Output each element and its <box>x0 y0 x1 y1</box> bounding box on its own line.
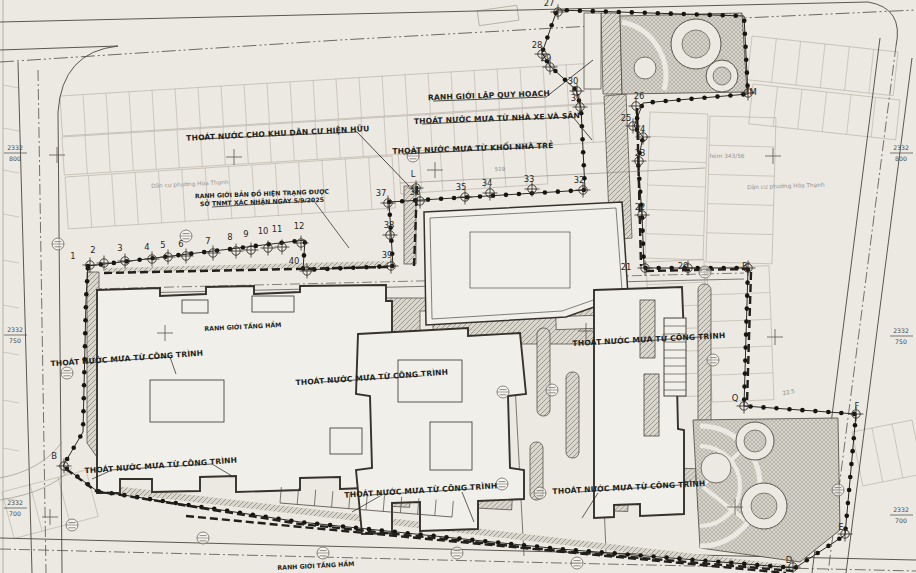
boundary-dot <box>787 407 792 412</box>
boundary-point-label: 28 <box>532 40 543 50</box>
boundary-dot <box>581 163 586 168</box>
boundary-dot <box>483 539 488 544</box>
boundary-point-label: B' <box>742 261 750 271</box>
boundary-dot <box>837 536 842 541</box>
boundary-dot <box>83 331 88 336</box>
boundary-dot <box>849 462 854 467</box>
boundary-dot <box>580 137 585 142</box>
boundary-dot <box>755 563 760 568</box>
boundary-dot <box>676 98 681 103</box>
boundary-point-label: 37 <box>376 188 387 198</box>
boundary-dot <box>815 551 820 556</box>
boundary-point-label: 34 <box>482 178 493 188</box>
boundary-dot <box>768 564 773 569</box>
boundary-dot <box>302 253 307 258</box>
boundary-dot <box>173 501 178 506</box>
boundary-point-label: B <box>51 451 57 461</box>
boundary-dot <box>478 194 483 199</box>
boundary-dot <box>82 370 87 375</box>
boundary-dot <box>744 57 749 62</box>
boundary-dot <box>848 475 853 480</box>
boundary-dot <box>581 150 586 155</box>
boundary-dot <box>702 95 707 100</box>
boundary-dot <box>569 189 574 194</box>
site-plan-svg: THOÁT NƯỚC CHO KHU DÂN CƯ HIỆN HỮU RANH … <box>0 0 916 573</box>
boundary-dot <box>84 292 89 297</box>
grid-northing: 2332 <box>893 327 909 334</box>
boundary-dot <box>847 488 852 493</box>
boundary-dot <box>629 10 634 15</box>
boundary-point-label: 39 <box>382 250 393 260</box>
grid-easting: 700 <box>9 510 21 517</box>
grid-northing: 2332 <box>7 144 23 151</box>
grid-northing: 2332 <box>7 326 23 333</box>
boundary-point-label: 11 <box>272 224 283 234</box>
boundary-dot <box>83 318 88 323</box>
stair-outline <box>664 318 686 396</box>
park-circle <box>701 453 731 483</box>
grid-easting: 700 <box>895 517 907 524</box>
boundary-dot <box>743 371 748 376</box>
boundary-dot <box>728 93 733 98</box>
boundary-dot <box>850 449 855 454</box>
grid-easting: 750 <box>9 337 21 344</box>
boundary-point-label: M <box>749 87 756 97</box>
boundary-point-label: 8 <box>227 232 232 242</box>
boundary-dot <box>715 94 720 99</box>
boundary-dot <box>743 44 748 49</box>
boundary-dot <box>668 11 673 16</box>
hatch-park-edge <box>601 13 622 94</box>
boundary-dot <box>742 384 747 389</box>
boundary-point-label: 22 <box>635 202 646 212</box>
boundary-dot <box>745 70 750 75</box>
building-core-hatched <box>644 374 659 436</box>
boundary-dot <box>707 13 712 18</box>
boundary-point-label: E <box>838 522 843 532</box>
boundary-dot <box>663 99 668 104</box>
boundary-dot <box>826 544 831 549</box>
boundary-dot <box>839 411 844 416</box>
boundary-dot <box>846 501 851 506</box>
building-core-hatched <box>640 300 655 358</box>
boundary-point-label: 32 <box>574 175 585 185</box>
boundary-point-label: 24 <box>635 124 646 134</box>
boundary-point-label: 3 <box>117 243 122 253</box>
boundary-dot <box>720 13 725 18</box>
boundary-dot <box>826 410 831 415</box>
boundary-dot <box>83 344 88 349</box>
boundary-point-label: 40 <box>289 256 300 266</box>
boundary-dot <box>743 358 748 363</box>
boundary-dot <box>761 405 766 410</box>
boundary-dot <box>112 261 117 266</box>
boundary-point-label: 21 <box>621 262 632 272</box>
boundary-point-label: 20 <box>678 261 689 271</box>
boundary-dot <box>853 423 858 428</box>
boundary-dot <box>65 457 70 462</box>
stair-grid <box>664 318 686 396</box>
label-dim-519: 519 <box>494 166 505 172</box>
boundary-dot <box>742 18 747 23</box>
boundary-point-label: 23 <box>635 148 646 158</box>
boundary-dot <box>202 250 207 255</box>
boundary-point-label: F <box>855 401 860 411</box>
boundary-point-label: 25 <box>621 113 632 123</box>
grid-easting: 750 <box>895 338 907 345</box>
boundary-dot <box>642 11 647 16</box>
boundary-point-label: 33 <box>524 174 535 184</box>
boundary-dot <box>635 116 640 121</box>
boundary-dot <box>150 256 155 261</box>
boundary-dot <box>543 190 548 195</box>
boundary-point-label: 9 <box>243 229 248 239</box>
boundary-dot <box>743 31 748 36</box>
boundary-dot <box>744 319 749 324</box>
boundary-dot <box>81 409 86 414</box>
boundary-dot <box>78 434 83 439</box>
boundary-dot <box>517 192 522 197</box>
boundary-dot <box>852 436 857 441</box>
boundary-point-label: 7 <box>205 236 210 246</box>
label-alley: hẻm 343/56 <box>709 153 744 159</box>
boundary-dot <box>400 199 405 204</box>
boundary-dot <box>328 523 333 528</box>
boundary-dot <box>364 265 369 270</box>
boundary-dot <box>733 13 738 18</box>
boundary-dot <box>638 553 643 558</box>
boundary-dot <box>137 258 142 263</box>
boundary-dot <box>81 396 86 401</box>
boundary-dot <box>545 35 550 40</box>
boundary-point-label: Q <box>732 393 739 403</box>
boundary-dot <box>844 514 849 519</box>
service-structure <box>584 13 601 89</box>
grid-easting: 800 <box>9 155 21 162</box>
site-plan-drawing: THOÁT NƯỚC CHO KHU DÂN CƯ HIỆN HỮU RANH … <box>0 0 916 573</box>
grid-easting: 800 <box>895 155 907 162</box>
boundary-dot <box>745 306 750 311</box>
median-hatch <box>537 328 550 416</box>
boundary-dot <box>743 345 748 350</box>
boundary-dot <box>744 332 749 337</box>
boundary-dot <box>748 404 753 409</box>
park-circle-inner <box>682 30 710 58</box>
park-circle <box>634 57 656 79</box>
boundary-dot <box>85 279 90 284</box>
boundary-point-label: 27 <box>544 0 555 8</box>
grid-northing: 2332 <box>893 506 909 513</box>
boundary-dot <box>549 23 554 28</box>
boundary-dot <box>563 78 568 83</box>
boundary-point-label: 4 <box>144 242 149 252</box>
boundary-dot <box>617 10 622 15</box>
boundary-dot <box>804 558 809 563</box>
boundary-dot <box>176 253 181 258</box>
boundary-point-label: 5 <box>160 240 165 250</box>
boundary-dot <box>556 189 561 194</box>
boundary-dot <box>813 409 818 414</box>
boundary-dot <box>681 12 686 17</box>
park-circle-inner <box>744 430 766 452</box>
boundary-point-label: L <box>411 169 416 179</box>
boundary-dot <box>84 305 89 310</box>
boundary-point-label: 12 <box>294 221 305 231</box>
grid-northing: 2332 <box>893 144 909 151</box>
boundary-dot <box>604 9 609 14</box>
boundary-point-label: 1 <box>70 251 75 261</box>
boundary-point-label: D <box>786 555 792 565</box>
boundary-dot <box>452 196 457 201</box>
boundary-dot <box>241 245 246 250</box>
boundary-dot <box>655 11 660 16</box>
boundary-dot <box>71 445 76 450</box>
park-circle-inner <box>751 493 777 519</box>
boundary-dot <box>504 193 509 198</box>
median-hatch <box>566 372 579 458</box>
boundary-dot <box>81 422 86 427</box>
boundary-point-label: 6 <box>178 239 183 249</box>
boundary-dot <box>388 213 393 218</box>
boundary-dot <box>781 565 786 570</box>
boundary-dot <box>439 197 444 202</box>
boundary-dot <box>591 9 596 14</box>
boundary-dot <box>694 12 699 17</box>
boundary-point-label: 10 <box>258 226 269 236</box>
boundary-dot <box>745 280 750 285</box>
boundary-dot <box>650 100 655 105</box>
boundary-point-label: 35 <box>456 182 467 192</box>
boundary-point-label: 2 <box>90 245 95 255</box>
boundary-dot <box>578 8 583 13</box>
boundary-dot <box>800 408 805 413</box>
park-circle-inner <box>713 67 731 85</box>
boundary-point-label: 26 <box>634 91 645 101</box>
boundary-point-label: 30 <box>568 76 579 86</box>
boundary-point-label: 38 <box>384 220 395 230</box>
boundary-dot <box>774 406 779 411</box>
grid-northing: 2332 <box>7 499 23 506</box>
boundary-dot <box>82 383 87 388</box>
boundary-dot <box>745 293 750 298</box>
boundary-dot <box>689 97 694 102</box>
